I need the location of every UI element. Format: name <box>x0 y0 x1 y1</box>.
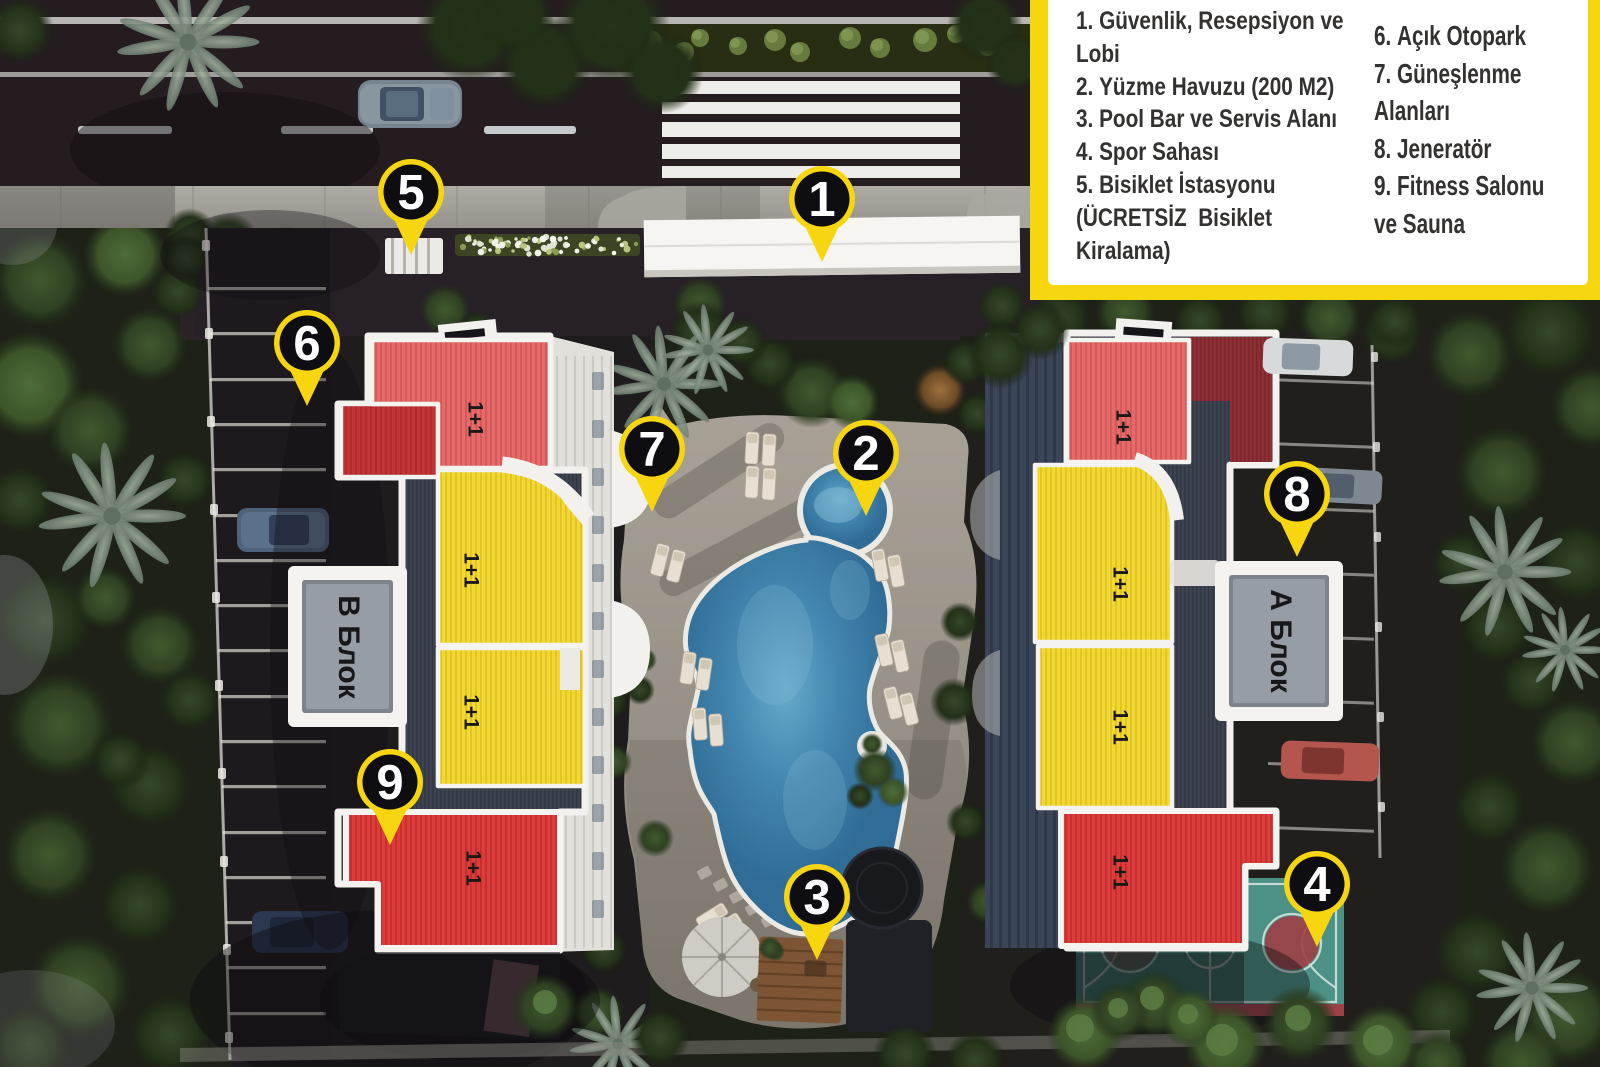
svg-text:1: 1 <box>808 173 835 227</box>
svg-text:1+1: 1+1 <box>1111 409 1134 445</box>
svg-text:4: 4 <box>1303 858 1330 912</box>
svg-text:5: 5 <box>397 166 424 220</box>
svg-text:А Блок: А Блок <box>1264 589 1297 694</box>
svg-text:3: 3 <box>803 871 830 925</box>
svg-text:8: 8 <box>1283 468 1310 522</box>
svg-text:2: 2 <box>852 427 879 481</box>
svg-text:В Блок: В Блок <box>332 595 365 700</box>
svg-text:1+1: 1+1 <box>459 694 482 730</box>
svg-text:1+1: 1+1 <box>1108 854 1131 890</box>
svg-text:1+1: 1+1 <box>461 850 484 886</box>
svg-text:7: 7 <box>638 423 665 477</box>
svg-text:6: 6 <box>293 317 320 371</box>
svg-text:9: 9 <box>376 756 403 810</box>
svg-text:1+1: 1+1 <box>1108 566 1131 602</box>
svg-text:1+1: 1+1 <box>463 401 486 437</box>
svg-text:1+1: 1+1 <box>459 552 482 588</box>
svg-text:1+1: 1+1 <box>1108 709 1131 745</box>
